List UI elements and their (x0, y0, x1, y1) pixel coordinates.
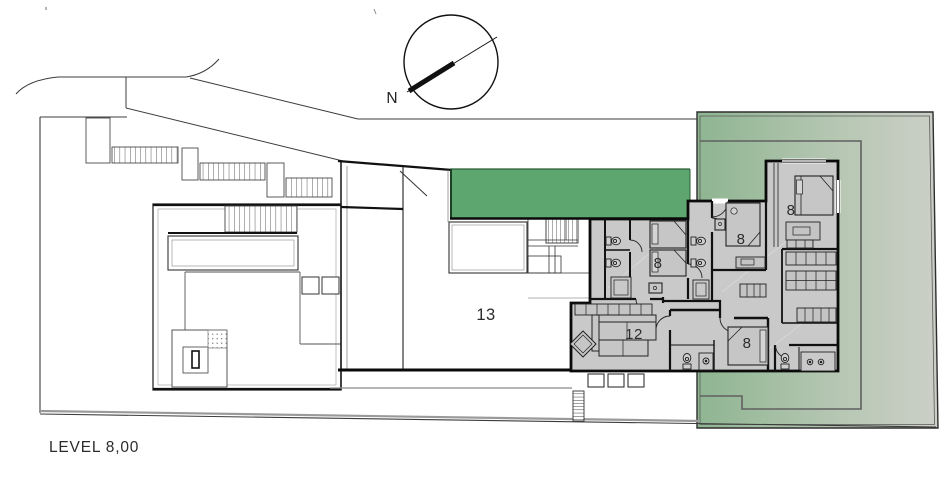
door-swing-line (400, 171, 427, 196)
upper-partition (341, 207, 403, 209)
road-curve-left (16, 77, 186, 94)
stair-landing (86, 118, 110, 163)
level-label: LEVEL 8,00 (49, 439, 139, 456)
lower-roof-panel (449, 222, 527, 273)
nightstand (715, 219, 725, 230)
road-upper-diagonal (190, 78, 358, 119)
toilet (691, 259, 706, 267)
planter-box (628, 374, 644, 387)
toilet (781, 354, 789, 370)
hall-stair (528, 219, 590, 298)
toilet (683, 354, 691, 370)
road-curve-right (186, 59, 219, 77)
north-label: N (386, 90, 397, 107)
bed (795, 176, 833, 215)
shower (611, 277, 631, 298)
room-label-8-top-right: 8 (787, 202, 796, 219)
room-label-8-bottom-right: 8 (743, 335, 752, 352)
shower (693, 280, 709, 299)
floor-plan-page: N (0, 0, 951, 477)
planter-box (608, 374, 624, 387)
bench (787, 240, 813, 248)
boundary-bottom-gray (40, 411, 700, 421)
closet (575, 304, 652, 315)
artifact-dot (45, 7, 47, 10)
top-slope-wall (338, 161, 452, 170)
desk (736, 257, 765, 268)
closet (786, 252, 836, 265)
toilet (691, 237, 706, 245)
planted-roof-strip (450, 169, 690, 219)
terrace (330, 374, 644, 421)
sink-unit (699, 353, 713, 370)
closet (786, 271, 836, 290)
toilet (606, 237, 621, 245)
road-lines (16, 7, 376, 162)
double-basin (801, 352, 835, 371)
nightstand (649, 283, 662, 293)
room-label-8-middle: 8 (654, 255, 663, 272)
room-label-12: 12 (625, 326, 643, 343)
dresser (786, 222, 820, 240)
closet (740, 284, 766, 297)
stair-landing (182, 148, 198, 180)
hillside-stairs (86, 118, 332, 197)
skylight-square (302, 277, 319, 294)
north-compass: N (386, 15, 498, 109)
room-label-8-upper-right: 8 (737, 231, 746, 248)
planter-box (588, 374, 604, 387)
roof-planter (168, 236, 298, 270)
room-label-13: 13 (476, 306, 495, 324)
bed (650, 221, 686, 248)
sofa (592, 315, 656, 356)
gravel-patch (208, 330, 227, 348)
toilet (606, 259, 621, 267)
floor-plan-canvas: N (0, 0, 951, 477)
closet (797, 308, 836, 322)
stair-landing (267, 163, 284, 197)
artifact-tick (374, 9, 376, 14)
chimney (192, 351, 199, 368)
planted-strip-surface (450, 169, 690, 218)
skylight-square (322, 277, 339, 294)
